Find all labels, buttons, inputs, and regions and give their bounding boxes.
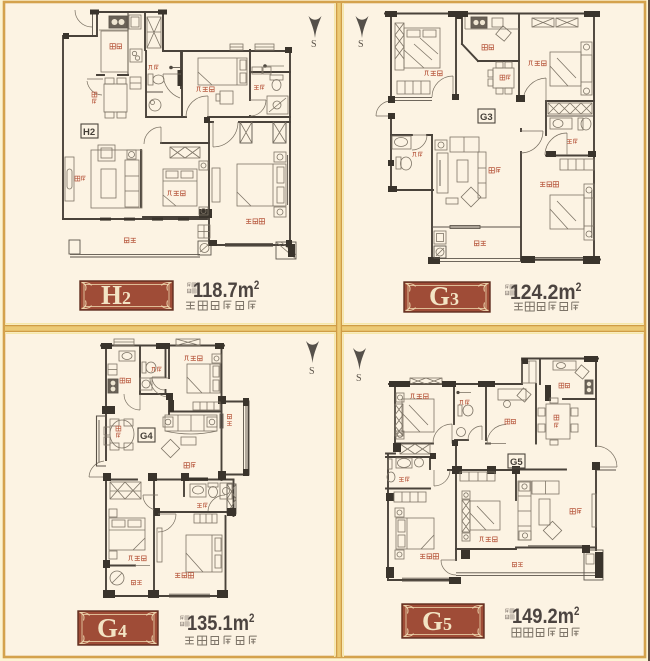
svg-text:124.2m2: 124.2m2 <box>510 280 581 304</box>
svg-text:S: S <box>358 39 364 50</box>
svg-text:S: S <box>311 39 317 50</box>
svg-text:G4: G4 <box>140 431 153 442</box>
svg-text:G5: G5 <box>510 457 523 468</box>
svg-text:G3: G3 <box>480 112 493 123</box>
svg-text:S: S <box>309 366 315 377</box>
svg-text:118.7m2: 118.7m2 <box>193 279 259 303</box>
svg-text:149.2m2: 149.2m2 <box>512 605 579 629</box>
svg-text:135.1m2: 135.1m2 <box>187 612 254 636</box>
svg-text:S: S <box>356 373 362 384</box>
svg-text:H2: H2 <box>83 127 95 138</box>
